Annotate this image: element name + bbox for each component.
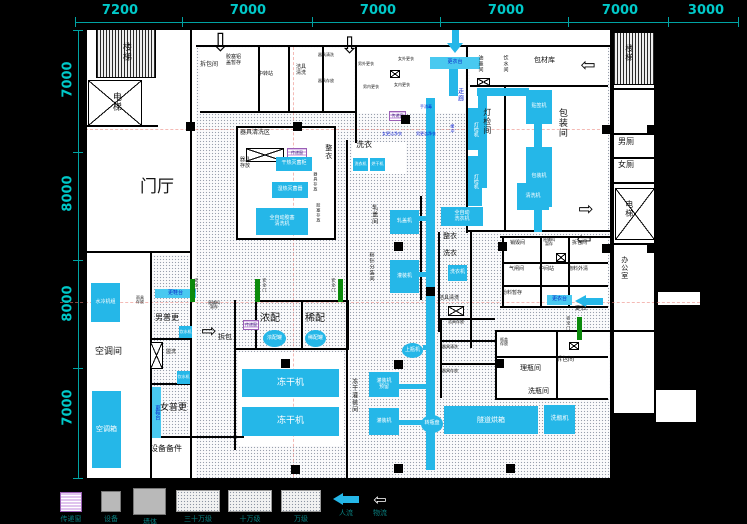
- column-marker: [394, 464, 403, 473]
- wall-segment: [234, 300, 236, 450]
- equipment-block: 灌装机 预留: [369, 372, 399, 397]
- column-marker: [647, 244, 656, 253]
- dimension-label: 3000: [686, 3, 726, 18]
- equipment-block: 饮水机: [177, 371, 190, 384]
- room-label: 器具清洗: [442, 345, 458, 349]
- dimension-label: 7000: [358, 3, 398, 18]
- wall-segment: [495, 398, 608, 400]
- dimension-label: 7000: [228, 3, 268, 18]
- pass-window: 传递窗: [243, 320, 259, 330]
- wall-segment: [236, 126, 238, 240]
- wall-segment: [502, 285, 608, 287]
- room-label: 手消毒: [420, 105, 432, 109]
- legend-label: 三十万级: [174, 514, 222, 524]
- arrow-head: [447, 43, 463, 53]
- room-label: 男内更衣: [363, 85, 379, 89]
- dimension-tick: [73, 152, 83, 153]
- dimension-tick: [75, 17, 76, 27]
- wall-segment: [504, 87, 506, 232]
- flow-arrow-people: [333, 493, 359, 506]
- wall-segment: [346, 140, 348, 478]
- equipment-block: 转瓶盘: [421, 415, 443, 433]
- equipment-block: 浓配罐: [263, 330, 286, 347]
- equipment-block: 更衣台: [430, 57, 480, 69]
- equipment-block: 灌装机: [390, 260, 419, 293]
- arrow-shaft: [586, 298, 603, 305]
- column-marker: [293, 122, 302, 131]
- dimension-tick: [73, 368, 83, 369]
- fixture-xbox: [615, 188, 655, 240]
- fixture-xbox: [556, 253, 566, 262]
- room-label: 物料外清: [568, 267, 588, 273]
- room-label: 楼梯: [624, 44, 633, 62]
- room-label: 走廊: [456, 88, 463, 102]
- equipment-block: 更衣台: [547, 295, 572, 305]
- arrow-shaft: [343, 496, 359, 503]
- room-label: 男普更: [155, 314, 179, 323]
- room-label: 女更洁净衣: [382, 132, 402, 136]
- dimension-tick: [738, 17, 739, 27]
- dimension-label: 8000: [61, 284, 76, 324]
- room-label: 粉针分装间: [368, 252, 374, 282]
- legend-swatch-clean-class: [228, 490, 272, 512]
- room-label: 楼梯: [120, 42, 130, 62]
- fixture-xbox: [150, 342, 163, 369]
- room-label: 销毁间: [510, 241, 525, 247]
- room-label: 办公室: [620, 256, 628, 280]
- column-marker: [498, 242, 507, 251]
- flow-arrow-material: ⇦: [578, 58, 598, 73]
- room-label: 安全门: [566, 316, 570, 331]
- legend-swatch-gray: [101, 491, 121, 512]
- wall-segment: [612, 182, 656, 184]
- room-label: 整衣: [324, 144, 332, 160]
- room-label: 包材库: [534, 57, 555, 65]
- equipment-block: 水冷机组: [91, 283, 120, 322]
- equipment-block: 洗衣机: [448, 265, 467, 281]
- wall-segment: [85, 28, 87, 480]
- equipment-block: 灌装机: [369, 408, 399, 435]
- room-label: 包装间: [556, 108, 566, 138]
- wall-segment: [200, 111, 356, 113]
- room-label: 安全门: [262, 278, 266, 293]
- axis-line: [60, 302, 700, 303]
- building-area: [654, 388, 698, 424]
- room-label: 洁具存放: [448, 320, 464, 324]
- room-label: 洁具清洗: [439, 296, 459, 302]
- dimension-label: 7000: [61, 60, 76, 100]
- dimension-tick: [668, 17, 669, 27]
- wall-segment: [612, 30, 656, 32]
- legend-label: 墙体: [126, 517, 174, 524]
- wall-segment: [470, 232, 472, 348]
- floor-plan-canvas: 传递窗传递窗传递窗贴签机包装机更衣台干热灭菌柜湿热灭菌器全自动胶塞 清洗机洗衣机…: [0, 0, 747, 524]
- equipment-block: 全自动胶塞 清洗机: [256, 208, 308, 235]
- column-marker: [506, 464, 515, 473]
- legend-bar: 传递窗设备墙体三十万级十万级万级人流⇦物流: [0, 480, 747, 524]
- room-label: 稀配: [305, 313, 325, 324]
- safety-door: [338, 279, 343, 302]
- room-label: 电梯: [624, 200, 633, 218]
- flow-arrow-material: ⇨: [199, 324, 219, 339]
- wall-segment: [502, 262, 608, 264]
- equipment-block: 湿热灭菌器: [272, 182, 308, 198]
- fixture-xbox: [569, 342, 579, 350]
- dimension-tick: [73, 260, 83, 261]
- room-label: 拆包: [218, 334, 232, 342]
- dimension-label: 7000: [600, 3, 640, 18]
- equipment-block: 饮水机: [179, 326, 192, 338]
- column-marker: [495, 359, 504, 368]
- dimension-line-left: [78, 30, 79, 478]
- column-marker: [426, 287, 435, 296]
- room-label: 器具存放: [313, 172, 317, 192]
- column-marker: [602, 244, 611, 253]
- fixture-xbox: [390, 70, 400, 78]
- column-marker: [291, 465, 300, 474]
- room-label: 安全门: [331, 278, 335, 293]
- fixture-xbox: [448, 306, 464, 316]
- room-label: 洁具 清洗: [296, 65, 306, 76]
- room-label: 油墨间: [477, 55, 483, 73]
- room-label: 器具清洗: [318, 53, 334, 57]
- room-label: 男更洁净衣: [416, 132, 436, 136]
- room-label: 瓶盖 存放: [500, 338, 508, 347]
- legend-label: 十万级: [226, 514, 274, 524]
- wall-segment: [334, 126, 336, 240]
- room-label: 理瓶间: [520, 365, 541, 373]
- wall-segment: [612, 413, 656, 415]
- room-label: 原辅料 暂存: [208, 301, 220, 310]
- wall-segment: [85, 28, 612, 30]
- wall-segment: [470, 85, 608, 87]
- flow-arrow-people: [575, 295, 603, 308]
- room-label: 灯检间: [482, 108, 491, 135]
- legend-swatch-clean-class: [281, 490, 321, 512]
- column-marker: [647, 125, 656, 134]
- dimension-tick: [312, 17, 313, 27]
- room-label: 缓冲: [450, 124, 454, 134]
- wall-segment: [288, 47, 290, 111]
- column-marker: [394, 242, 403, 251]
- wall-segment: [236, 238, 336, 240]
- room-label: 拆包间: [200, 62, 218, 69]
- wall-segment: [440, 363, 495, 365]
- wall-segment: [495, 330, 610, 332]
- wall-segment: [355, 45, 357, 143]
- room-label: 男外更衣: [358, 62, 374, 66]
- room-label: 轧盖间: [370, 204, 377, 225]
- column-marker: [602, 125, 611, 134]
- flow-arrow-material: ⇩: [340, 36, 356, 56]
- legend-arrow-material: ⇦: [368, 493, 392, 506]
- conveyor-pipe-segment: [423, 345, 435, 350]
- dimension-label: 7000: [61, 388, 76, 428]
- equipment-block: 烘干机: [370, 158, 385, 171]
- fixture-xbox: [477, 78, 490, 86]
- flow-arrow-people: [447, 30, 464, 54]
- wall-segment: [612, 88, 656, 90]
- room-label: 女普更: [160, 404, 187, 414]
- equipment-block: 全自动 洗衣机: [441, 207, 483, 226]
- room-label: 器具 存放: [240, 158, 250, 169]
- room-label: 冻干灌装间: [350, 378, 357, 413]
- dimension-tick: [182, 17, 183, 27]
- equipment-block: 稀配罐: [305, 330, 326, 347]
- axis-line: [85, 129, 610, 130]
- flow-arrow-material: ⇦: [574, 232, 594, 247]
- room-label: 男厕: [618, 138, 634, 147]
- dimension-tick: [440, 17, 441, 27]
- wall-segment: [152, 338, 190, 340]
- column-marker: [394, 360, 403, 369]
- dimension-tick: [73, 30, 83, 31]
- wall-segment: [556, 332, 558, 398]
- wall-segment: [85, 251, 191, 253]
- room-label: 器具存放: [442, 369, 458, 373]
- wall-segment: [238, 126, 336, 128]
- dimension-line-top: [75, 22, 738, 23]
- conveyor-pipe-segment: [398, 384, 426, 389]
- wall-segment: [190, 28, 192, 480]
- equipment-block: 洗衣机: [353, 158, 368, 171]
- room-label: 拆包间: [556, 357, 574, 364]
- room-label: 原辅料 暂存: [543, 238, 555, 247]
- room-label: 洗衣: [443, 250, 457, 258]
- dimension-tick: [73, 478, 83, 479]
- room-label: 胶塞存放: [316, 203, 320, 223]
- dimension-tick: [568, 17, 569, 27]
- wall-segment: [495, 356, 608, 358]
- column-marker: [401, 115, 410, 124]
- room-label: 女外更衣: [398, 57, 414, 61]
- room-label: 盥洗: [166, 350, 176, 356]
- floor-plan: 传递窗传递窗传递窗贴签机包装机更衣台干热灭菌柜湿热灭菌器全自动胶塞 清洗机洗衣机…: [0, 0, 747, 524]
- dimension-label: 7000: [486, 3, 526, 18]
- dimension-label: 8000: [61, 174, 76, 214]
- legend-swatch-gray: [133, 488, 166, 515]
- room-label: 中间站: [539, 267, 554, 273]
- equipment-block: 冻干机: [242, 369, 339, 397]
- wall-segment: [612, 330, 656, 332]
- wall-segment: [301, 302, 303, 350]
- safety-door: [577, 317, 582, 340]
- room-label: 整衣: [443, 233, 457, 241]
- room-label: 洗衣: [356, 141, 372, 150]
- legend-label: 万级: [277, 514, 325, 524]
- wall-segment: [258, 47, 260, 111]
- column-marker: [186, 122, 195, 131]
- room-label: 安全门: [194, 278, 198, 293]
- room-label: 浓配: [260, 313, 280, 324]
- room-label: 器具存放: [318, 79, 334, 83]
- equipment-block: 清洗机: [517, 183, 549, 210]
- room-label: 空调间: [95, 348, 122, 358]
- wall-segment: [612, 157, 656, 159]
- stair-hatch: [613, 32, 655, 85]
- room-label: 饮水间: [502, 55, 508, 73]
- legend-swatch-clean-class: [176, 490, 220, 512]
- equipment-block: 空调箱: [92, 391, 121, 468]
- room-label: 中转站: [258, 72, 273, 78]
- room-label: 电梯: [110, 92, 120, 112]
- room-label: 粉料暂存: [502, 291, 522, 297]
- room-label: 门厅: [140, 178, 174, 197]
- wall-segment: [150, 436, 244, 438]
- equipment-block: 灯检机: [468, 156, 482, 206]
- arrow-shaft: [452, 30, 459, 43]
- room-label: 气闸间: [509, 267, 524, 273]
- equipment-block: 轧盖机: [390, 210, 419, 234]
- column-marker: [281, 359, 290, 368]
- safety-door: [255, 279, 260, 302]
- room-label: 女内更衣: [394, 83, 410, 87]
- building-area: [656, 290, 702, 307]
- room-label: 设备备件: [150, 445, 182, 454]
- wall-segment: [440, 318, 442, 398]
- conveyor-pipe-segment: [477, 88, 529, 96]
- wall-segment: [440, 340, 495, 342]
- room-label: 器具清洗区: [240, 130, 270, 137]
- room-label: 女厕: [618, 161, 634, 170]
- equipment-block: 上瓶机: [402, 343, 423, 358]
- equipment-block: 干热灭菌柜: [276, 157, 312, 171]
- equipment-block: 灯检机: [468, 108, 482, 150]
- room-label: 洗瓶间: [528, 388, 549, 396]
- wall-segment: [420, 196, 422, 300]
- wall-segment: [438, 232, 440, 332]
- equipment-block: 贴签机: [526, 90, 552, 124]
- equipment-block: 隧道烘箱: [444, 406, 538, 434]
- flow-arrow-material: ⇨: [576, 202, 596, 217]
- arrow-head: [575, 295, 586, 307]
- equipment-block: 冻干机: [242, 407, 339, 436]
- wall-segment: [234, 348, 348, 350]
- legend-label: 物流: [356, 508, 404, 518]
- conveyor-pipe-segment: [534, 123, 542, 148]
- dimension-label: 7200: [100, 3, 140, 18]
- flow-arrow-material: ⇩: [210, 32, 228, 54]
- legend-swatch-pass-window: [60, 492, 82, 512]
- equipment-block: 洗瓶机: [544, 405, 575, 434]
- arrow-head: [333, 493, 343, 505]
- room-area: [497, 332, 609, 398]
- room-label: 雨具 存放: [136, 296, 144, 305]
